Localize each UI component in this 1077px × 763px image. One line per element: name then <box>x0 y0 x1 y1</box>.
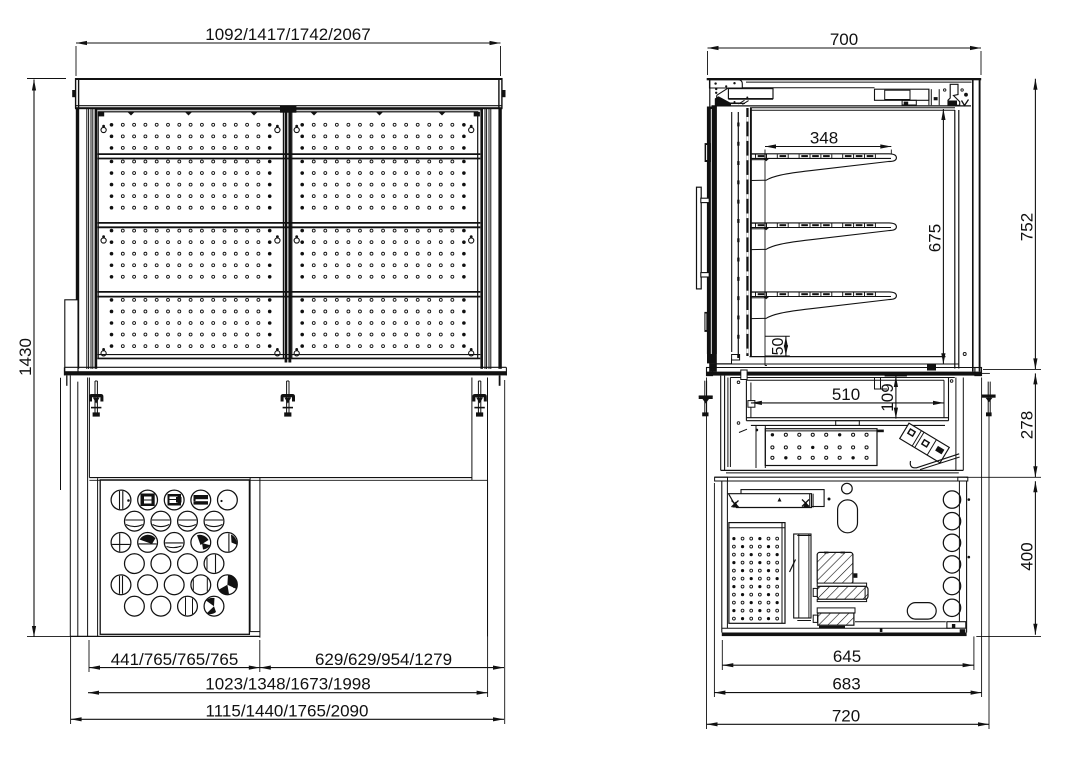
svg-text:109: 109 <box>878 383 897 411</box>
svg-text:1430: 1430 <box>16 338 35 376</box>
svg-text:348: 348 <box>810 129 838 148</box>
svg-text:675: 675 <box>925 224 944 252</box>
svg-text:441/765/765/765: 441/765/765/765 <box>111 650 239 669</box>
svg-text:629/629/954/1279: 629/629/954/1279 <box>315 650 452 669</box>
svg-text:645: 645 <box>833 647 861 666</box>
svg-text:50: 50 <box>770 338 787 356</box>
svg-text:1115/1440/1765/2090: 1115/1440/1765/2090 <box>206 701 369 720</box>
svg-text:278: 278 <box>1017 411 1036 439</box>
svg-text:1023/1348/1673/1998: 1023/1348/1673/1998 <box>205 675 370 694</box>
svg-text:400: 400 <box>1017 542 1036 570</box>
svg-text:752: 752 <box>1017 213 1036 241</box>
svg-text:683: 683 <box>832 675 860 694</box>
svg-text:1092/1417/1742/2067: 1092/1417/1742/2067 <box>205 25 370 44</box>
svg-text:700: 700 <box>830 30 858 49</box>
svg-text:720: 720 <box>832 706 860 725</box>
svg-text:510: 510 <box>832 385 860 404</box>
